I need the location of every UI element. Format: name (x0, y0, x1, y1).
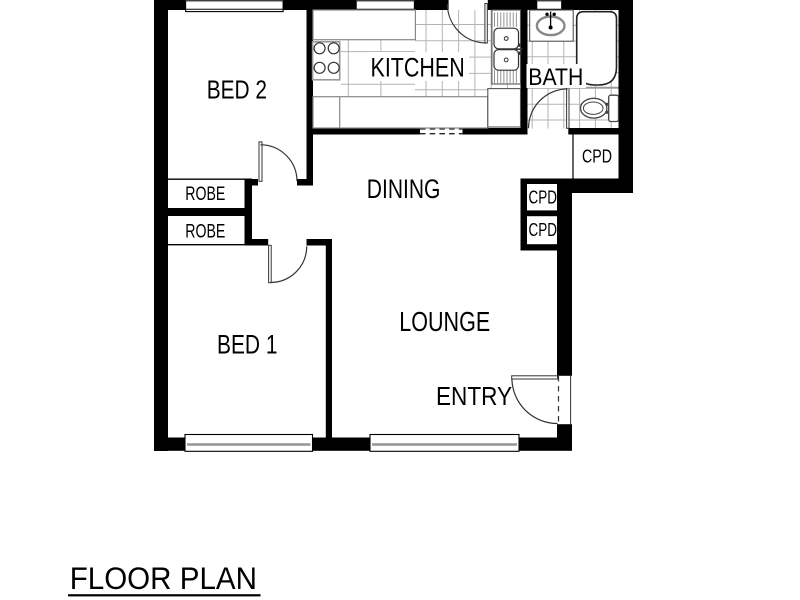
svg-text:BED 1: BED 1 (217, 329, 278, 359)
svg-text:CPD: CPD (582, 146, 612, 167)
svg-text:KITCHEN: KITCHEN (371, 52, 465, 82)
svg-text:ROBE: ROBE (185, 221, 225, 242)
svg-text:LOUNGE: LOUNGE (399, 306, 490, 337)
svg-text:CPD: CPD (529, 219, 558, 240)
svg-text:ENTRY: ENTRY (436, 383, 512, 411)
svg-text:BED 2: BED 2 (207, 77, 267, 105)
svg-text:ROBE: ROBE (185, 184, 225, 205)
svg-text:CPD: CPD (529, 187, 558, 208)
svg-text:DINING: DINING (367, 174, 441, 204)
svg-text:BATH: BATH (528, 64, 583, 91)
svg-text:FLOOR PLAN: FLOOR PLAN (70, 560, 257, 596)
